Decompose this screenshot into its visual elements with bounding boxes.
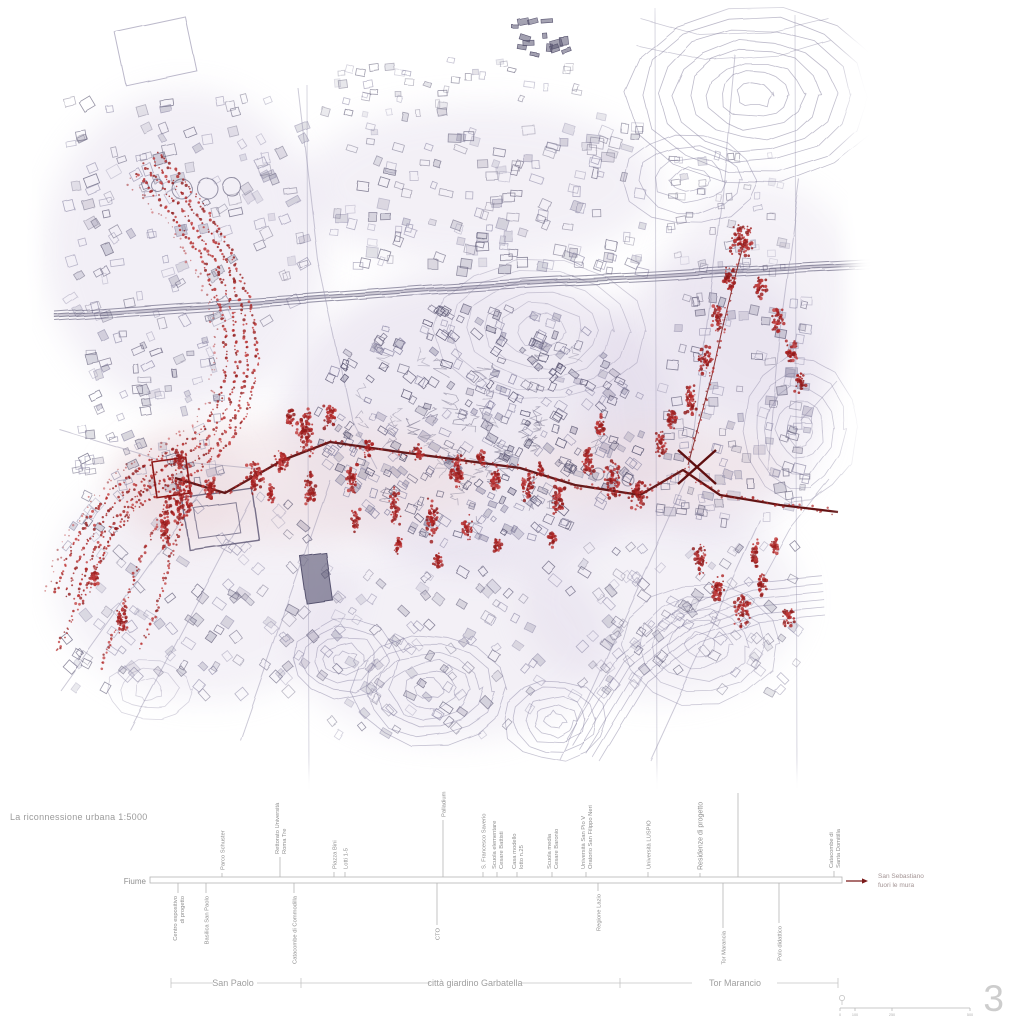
north-icon <box>839 995 844 1000</box>
destination-label: fuori le mura <box>878 882 915 889</box>
scale-tick-label: 500 <box>967 1013 973 1017</box>
scale-tick-label: 0 <box>839 1013 841 1017</box>
section-label: Tor Marancio <box>709 978 761 988</box>
scale-tick-label: 250 <box>889 1013 895 1017</box>
timeline-diagram: FiumeParco SchusterRettorato UniversitàR… <box>0 0 1024 1024</box>
timeline-label: Parco Schuster <box>221 830 227 870</box>
timeline-label: di progetto <box>180 896 186 923</box>
timeline-label: Università LUSPIO <box>647 820 653 869</box>
plan-title: La riconnessione urbana 1:5000 <box>10 812 148 822</box>
timeline-label: Cesare Baronio <box>554 829 560 869</box>
timeline-label: Piazza Bini <box>333 840 339 869</box>
section-label: San Paolo <box>212 978 254 988</box>
timeline-label: CTO <box>436 928 442 941</box>
timeline-bar <box>150 877 842 883</box>
page-number: 3 <box>983 980 1004 1017</box>
river-label: Fiume <box>124 877 147 886</box>
timeline-label: Rettorato Università <box>275 802 281 854</box>
timeline-label: Università San Pio V <box>581 816 587 869</box>
timeline-label: Catacombe di Commodilla <box>293 895 299 964</box>
scale-tick-label: 100 <box>852 1013 858 1017</box>
timeline-label: Basilica San Paolo <box>205 896 211 944</box>
scale-bar: 0100250500 <box>839 995 973 1017</box>
timeline-label: Regione Lazio <box>597 894 603 931</box>
timeline: FiumeParco SchusterRettorato UniversitàR… <box>124 791 925 988</box>
timeline-label: Casa modello <box>512 834 518 869</box>
timeline-label: Oratorio San Filippo Neri <box>588 805 594 869</box>
destination-arrowhead <box>862 878 868 883</box>
timeline-label: Residenze di progetto <box>698 802 705 870</box>
timeline-label: S. Francesco Saverio <box>482 814 488 869</box>
timeline-label: Cesare Battisti <box>499 831 505 869</box>
destination-label: San Sebastiano <box>878 873 924 880</box>
section-label: città giardino Garbatella <box>427 978 522 988</box>
timeline-label: Lotti 1-5 <box>344 848 350 869</box>
timeline-label: Santa Domitilla <box>836 828 842 868</box>
timeline-label: Catacombe di <box>829 832 835 868</box>
timeline-label: lotto n.25 <box>519 845 525 869</box>
timeline-label: Centro espositivo <box>173 896 179 941</box>
timeline-label: Scuola elementare <box>492 821 498 869</box>
presentation-board: FiumeParco SchusterRettorato UniversitàR… <box>0 0 1024 1024</box>
timeline-label: Tor Marancia <box>722 930 728 964</box>
timeline-label: Roma Tre <box>282 829 288 854</box>
timeline-label: Palladium <box>442 791 448 817</box>
timeline-label: Scuola media <box>547 833 553 869</box>
timeline-label: Polo didattico <box>778 926 784 961</box>
